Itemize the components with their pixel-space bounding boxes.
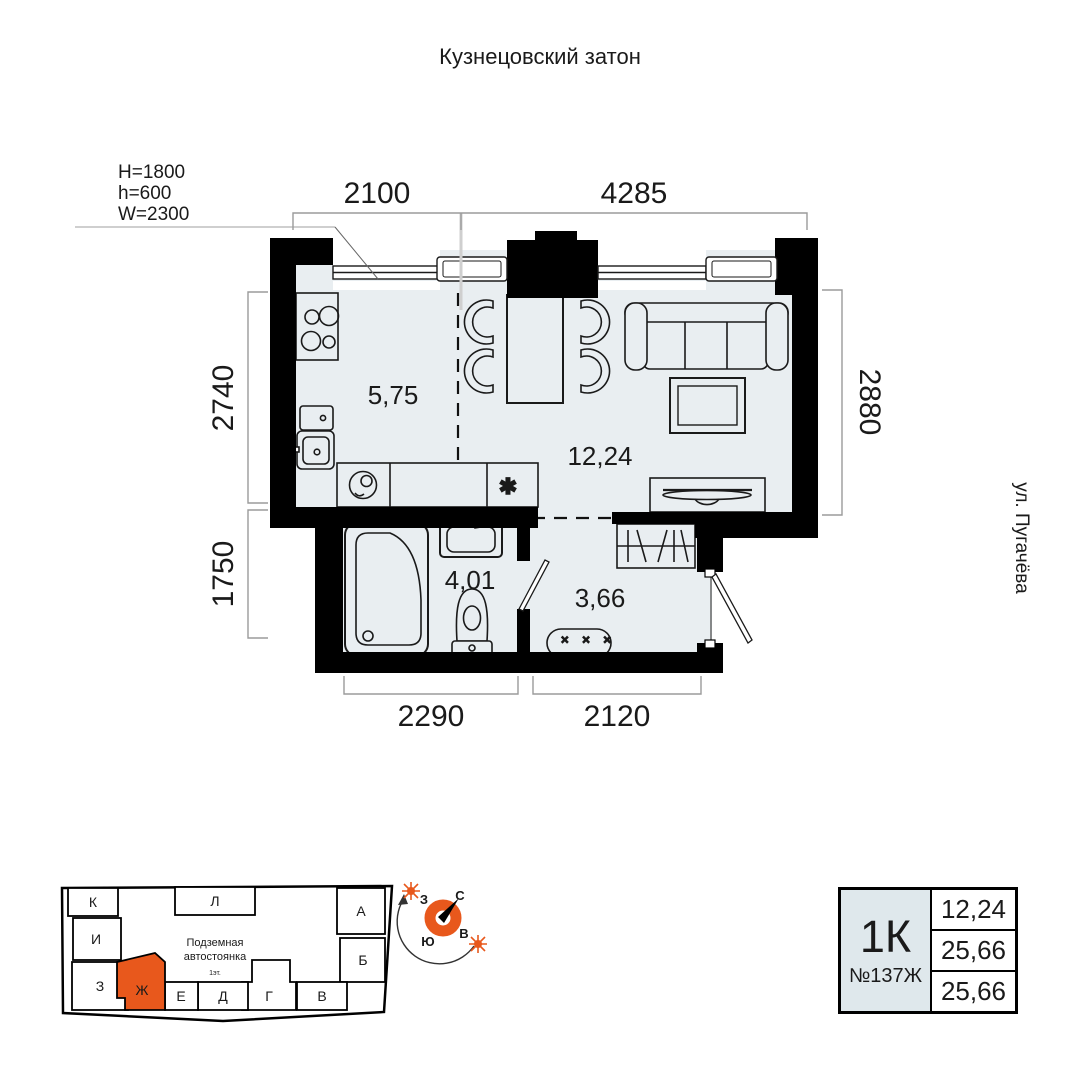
wall [270, 507, 538, 528]
apartment-type: 1К [860, 914, 911, 959]
compass-north: С [455, 888, 465, 903]
area-full-value: 25,66 [932, 972, 1015, 1011]
dim-line-left-lower [248, 510, 268, 638]
compass-south: Ю [421, 934, 434, 949]
dim-bottom-right: 2120 [584, 700, 651, 733]
dim-top-right: 4285 [601, 177, 668, 210]
compass: С З Ю В [397, 882, 487, 964]
page-title: Кузнецовский затон [439, 44, 641, 69]
window-spec-h2: h=600 [118, 183, 171, 204]
site-center-label-2: автостоянка [184, 951, 247, 963]
building-label-a: А [356, 903, 366, 919]
apartment-info-card: 1К №137Ж 12,24 25,66 25,66 [838, 887, 1018, 1014]
wall [612, 512, 695, 524]
wall [507, 240, 598, 298]
sun-icon [469, 935, 487, 953]
compass-west: З [420, 892, 428, 907]
wall [270, 238, 296, 528]
stove-icon [296, 293, 339, 360]
dim-line-left-upper [248, 292, 268, 503]
apartment-areas: 12,24 25,66 25,66 [932, 890, 1015, 1011]
building-label-zh: Ж [136, 982, 149, 998]
dim-right: 2880 [853, 369, 886, 436]
window-spec-w: W=2300 [118, 204, 189, 225]
wall [517, 528, 530, 561]
coffee-table-icon [670, 378, 745, 433]
dim-bottom-left: 2290 [398, 700, 465, 733]
window-mask [598, 281, 706, 290]
tv-stand-icon [650, 478, 765, 512]
dining-table [507, 295, 563, 403]
dishwasher-symbol: ✱ [499, 474, 517, 499]
site-floor-note: 1эт. [209, 970, 221, 977]
wall [697, 538, 723, 572]
bathtub-icon [345, 523, 428, 656]
window-spec-annotation: H=1800 h=600 W=2300 [118, 162, 189, 225]
wardrobe-icon [617, 524, 695, 568]
dim-left-lower: 1750 [207, 541, 240, 608]
dim-left-upper: 2740 [207, 365, 240, 432]
building-label-b: Б [358, 952, 367, 968]
kitchen-area-label: 5,75 [368, 380, 419, 410]
building-label-g: Г [265, 988, 273, 1004]
wall [792, 238, 818, 538]
wall [315, 528, 343, 673]
area-living-value: 12,24 [932, 890, 1015, 931]
bathroom-area-label: 4,01 [445, 565, 496, 595]
compass-east: В [459, 926, 468, 941]
entrance-door-leaf [712, 574, 752, 643]
wall [315, 652, 723, 673]
kitchen-window-sill-inner [443, 261, 501, 277]
window-spec-h: H=1800 [118, 162, 185, 183]
street-label: ул. Пугачёва [1011, 482, 1032, 594]
hall-area-label: 3,66 [575, 583, 626, 613]
dim-line-bottom-right [533, 676, 701, 694]
dim-line-top [293, 213, 807, 230]
apartment-type-cell: 1К №137Ж [841, 890, 932, 1011]
building-label-v: В [317, 988, 326, 1004]
dim-line-right [822, 290, 842, 515]
sun-icon [402, 882, 420, 900]
dim-line-bottom-left [344, 676, 518, 694]
window-mask [333, 281, 440, 290]
living-area-label: 12,24 [567, 441, 632, 471]
area-total-value: 25,66 [932, 931, 1015, 972]
door-frame [705, 640, 715, 648]
window-mask [333, 238, 440, 267]
wall [517, 609, 530, 653]
sofa-icon [625, 303, 788, 370]
floorplan-page: Кузнецовский затон ул. Пугачёва [0, 0, 1080, 1080]
site-center-label-1: Подземная [187, 937, 244, 949]
building-label-i: И [91, 931, 101, 947]
living-window-sill-inner [712, 261, 771, 277]
window-mask [598, 238, 706, 267]
building-label-z: З [96, 978, 104, 994]
shoe-bench-crosses: × × × [561, 632, 616, 647]
building-label-l: Л [210, 893, 219, 909]
wall [695, 512, 818, 538]
building-label-e: Е [176, 988, 185, 1004]
apartment-number: №137Ж [849, 965, 922, 988]
dim-top-left: 2100 [344, 177, 411, 210]
building-label-d: Д [218, 988, 228, 1004]
site-plan: К И З Л А Б В Г Д Е Ж Подземная автостоя… [62, 886, 392, 1021]
building-label-k: К [89, 894, 98, 910]
